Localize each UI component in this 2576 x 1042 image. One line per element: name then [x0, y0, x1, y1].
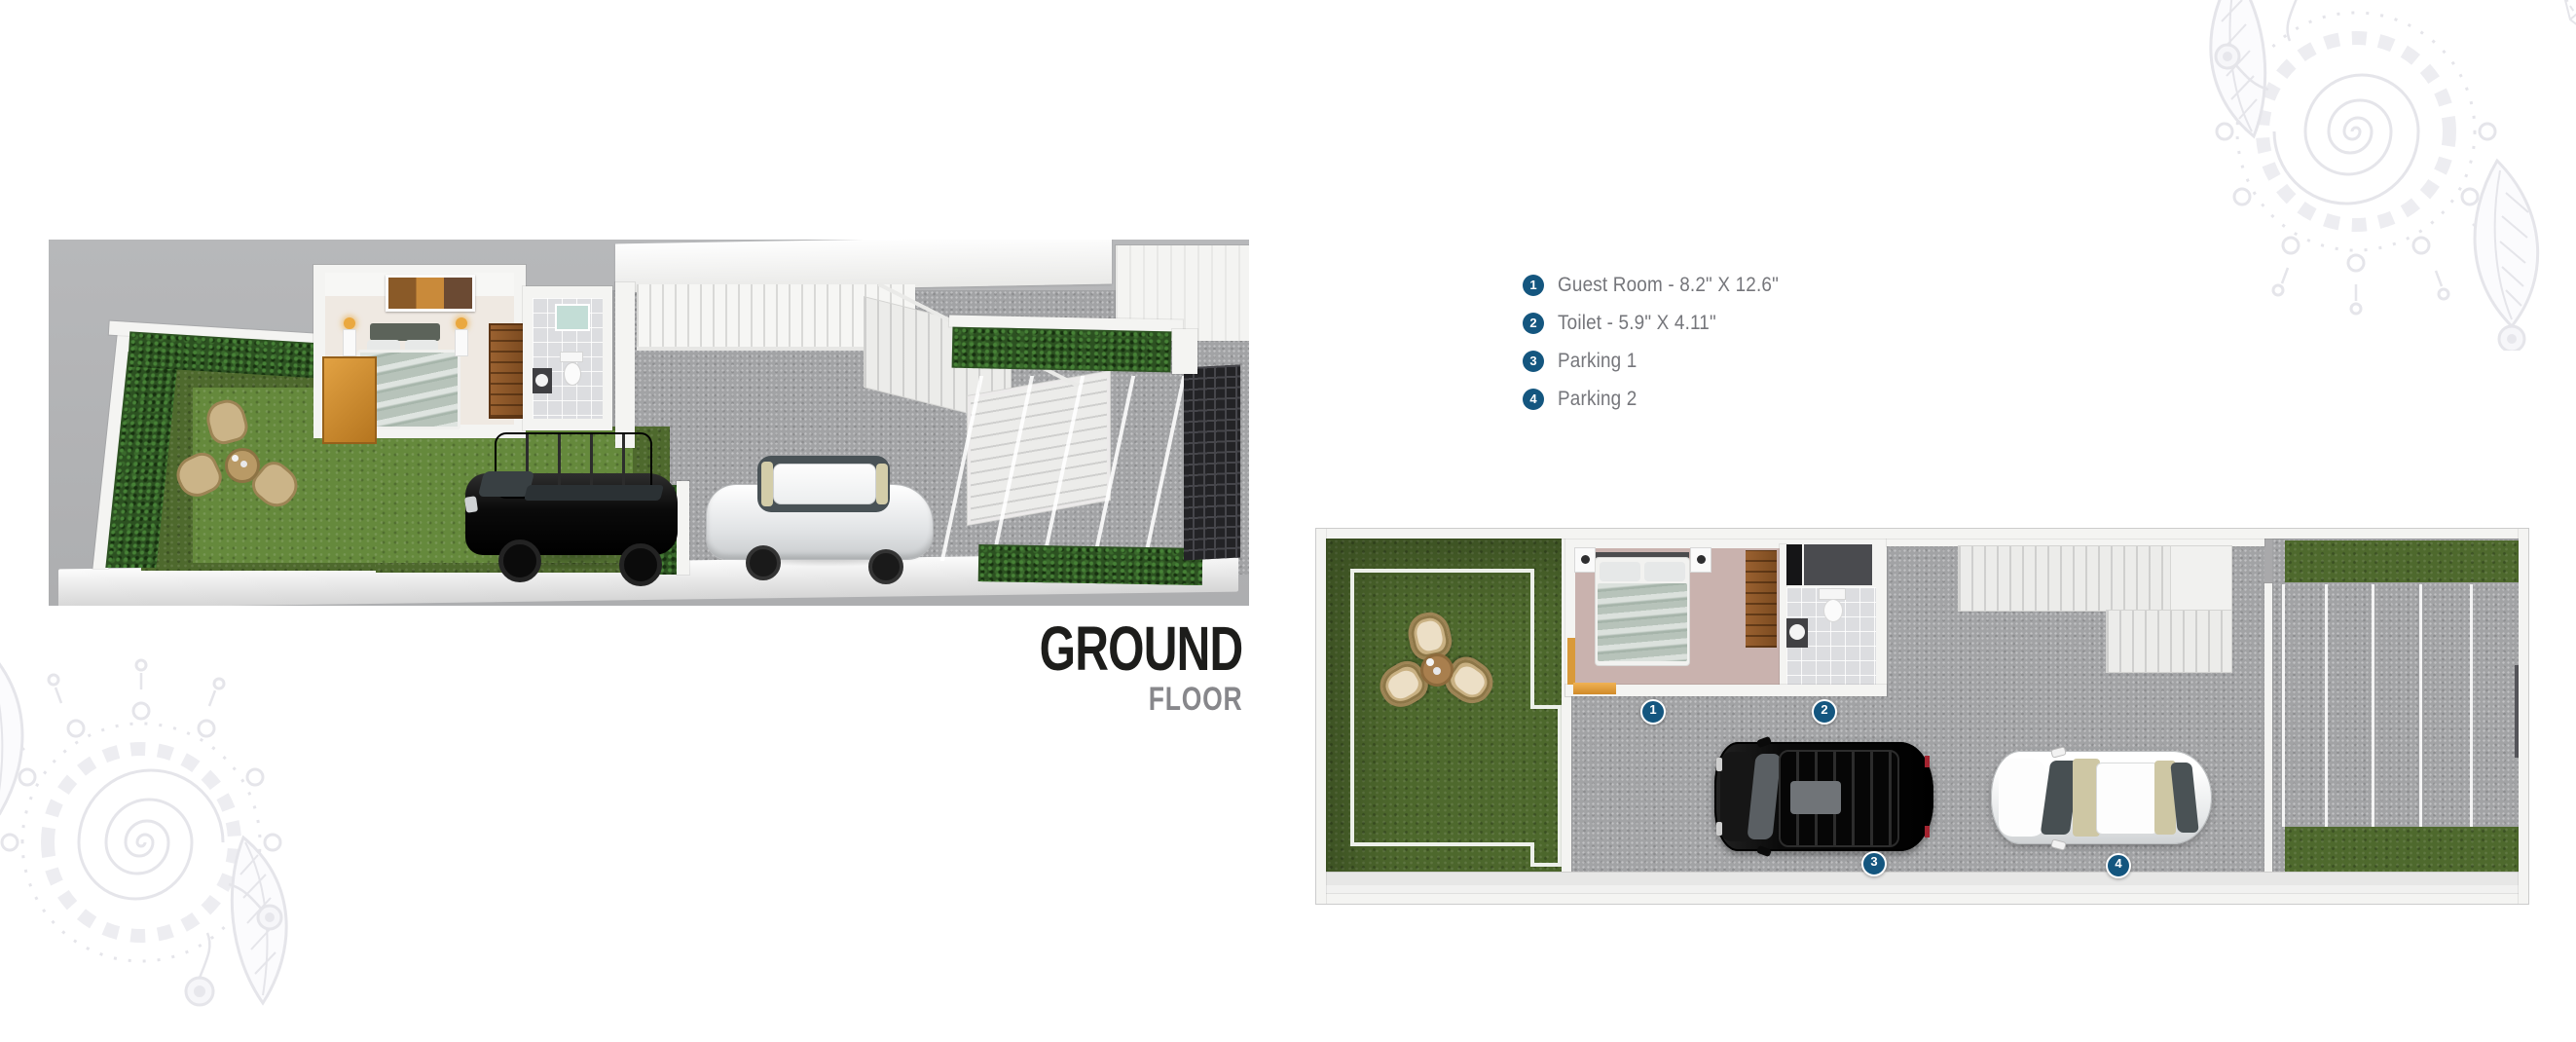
patio-cup	[240, 461, 247, 467]
suv-taillight-2d	[1925, 756, 1930, 767]
stairs-lower-flight-2d	[2107, 611, 2231, 672]
brochure-page: GROUND FLOOR 1 Guest Room - 8.2" X 12.6"…	[0, 0, 2576, 967]
garden-path-segment	[1530, 863, 1562, 867]
parking-stripe-line	[1042, 376, 1085, 561]
sedan-wheel	[746, 545, 781, 580]
orange-cabinet-2d	[1567, 638, 1575, 685]
parking-stripe-line	[2282, 584, 2285, 827]
patio-cup	[1433, 667, 1441, 675]
suv-side-windows	[524, 485, 664, 501]
stairs-top-wall-2d	[1887, 539, 2264, 546]
toilet-bowl-3d	[564, 362, 581, 386]
parking-green-bottom-2d	[2285, 827, 2519, 872]
washbasin-3d	[535, 374, 548, 387]
sedan-hood-2d	[1999, 759, 2045, 837]
bookshelf-3d	[489, 323, 526, 419]
page-title: GROUND FLOOR	[972, 619, 1242, 716]
stairs-landing-2d	[2171, 546, 2231, 611]
plan-marker-2-toilet: 2	[1812, 699, 1837, 725]
title-floor: FLOOR	[1031, 683, 1242, 716]
legend-label: Parking 2	[1558, 388, 1637, 411]
bottom-wall-strip-2d	[1326, 872, 2519, 885]
parking-stripe-line	[2470, 584, 2473, 827]
plan-marker-3-parking-1: 3	[1861, 851, 1887, 876]
sedan-roof-2d	[2096, 763, 2158, 835]
legend: 1 Guest Room - 8.2" X 12.6" 2 Toilet - 5…	[1523, 273, 1803, 425]
parking-stripe-line	[2325, 584, 2328, 827]
wardrobe-2d	[1746, 550, 1777, 648]
suv-headlight-2d	[1716, 758, 1722, 771]
bed-pillow-2d	[1600, 562, 1640, 581]
hedge-parking-top-3d	[952, 327, 1172, 373]
garden-path-segment	[1350, 569, 1534, 573]
parking-stripe-line	[1092, 376, 1135, 561]
dark-unit-large-2d	[1804, 544, 1872, 585]
bedside-lamp-3d	[344, 317, 355, 329]
garden-path-segment	[1350, 569, 1354, 846]
sedan-white-3d	[707, 456, 938, 575]
suv-wheel	[619, 543, 662, 586]
toilet-mirror-3d	[555, 304, 590, 331]
bed-pillow-2d	[1644, 562, 1685, 581]
plan-outer-wall-right	[2519, 529, 2528, 904]
suv-headlight	[464, 496, 478, 513]
plan-marker-4-parking-2: 4	[2106, 853, 2131, 878]
washbasin-2d	[1789, 624, 1805, 640]
sedan-roof	[773, 464, 876, 504]
orange-bench-2d	[1573, 683, 1616, 694]
floor-plan-2d-view: 1 2 3 4	[1316, 529, 2528, 904]
bedside-table-3d	[456, 330, 467, 355]
legend-label: Toilet - 5.9" X 4.11"	[1558, 312, 1716, 335]
plan-outer-wall-top	[1316, 529, 2528, 539]
sedan-interior	[761, 462, 773, 506]
suv-taillight-2d	[1925, 826, 1930, 837]
legend-number-icon: 2	[1523, 313, 1544, 334]
plan-outer-wall-bottom	[1316, 894, 2528, 904]
decorative-paisley-bottom-left	[0, 623, 443, 1042]
floor-plan-3d-view	[49, 240, 1249, 606]
suv-wheel	[498, 540, 541, 582]
parking-stripe-line	[2372, 584, 2374, 827]
parking-stripes-3d	[935, 376, 1207, 561]
wall-art-3d	[386, 275, 475, 312]
entrance-gate-3d	[1184, 364, 1240, 560]
dark-unit-2d	[1786, 544, 1802, 585]
sedan-white-2d	[1991, 751, 2212, 844]
bedside-lamp-3d	[456, 317, 467, 329]
legend-number-icon: 1	[1523, 275, 1544, 296]
stair-sidewall-3d	[615, 282, 635, 448]
suv-black-2d	[1714, 742, 1933, 851]
plan-marker-1-guest-room: 1	[1640, 699, 1666, 725]
toilet-bowl-2d	[1823, 599, 1843, 622]
plan-outer-wall-left	[1316, 529, 1326, 904]
legend-row-guest-room: 1 Guest Room - 8.2" X 12.6"	[1523, 273, 1803, 298]
suv-black-3d	[465, 432, 684, 578]
garden-path-segment	[1530, 842, 1534, 867]
bed-headboard-3d	[370, 323, 440, 341]
gate-pillar-3d	[1172, 329, 1197, 374]
decorative-paisley-top-right	[2054, 0, 2576, 351]
legend-row-parking-2: 4 Parking 2	[1523, 387, 1803, 412]
bedside-lamp-2d	[1697, 555, 1706, 564]
legend-number-icon: 4	[1523, 389, 1544, 410]
sedan-interior	[876, 464, 888, 504]
wardrobe-orange-3d	[322, 356, 377, 444]
parking-green-top-2d	[2285, 540, 2519, 582]
legend-label: Parking 1	[1558, 350, 1637, 373]
legend-row-toilet: 2 Toilet - 5.9" X 4.11"	[1523, 311, 1803, 336]
sedan-wheel	[868, 549, 903, 584]
patio-cup	[1426, 658, 1434, 666]
bottom-wall-strip-outer-2d	[1326, 885, 2519, 894]
legend-row-parking-1: 3 Parking 1	[1523, 349, 1803, 374]
legend-number-icon: 3	[1523, 351, 1544, 372]
hedge-parking-bottom-3d	[978, 544, 1203, 585]
parking-area-2d	[2272, 539, 2519, 875]
garden-path-segment	[1350, 842, 1534, 846]
bedside-lamp-2d	[1581, 555, 1590, 564]
bed-duvet-2d	[1598, 583, 1687, 661]
parking-stripe-line	[991, 376, 1034, 561]
divider-wall-2d	[2264, 583, 2272, 872]
bedside-table-3d	[344, 330, 355, 355]
toilet-tank-2d	[1820, 589, 1845, 599]
parking-stripe-line	[2419, 584, 2422, 827]
suv-sunroof-2d	[1790, 781, 1841, 814]
legend-label: Guest Room - 8.2" X 12.6"	[1558, 274, 1779, 297]
suv-headlight-2d	[1716, 822, 1722, 836]
bedroom-toilet-wall-2d	[1780, 544, 1786, 685]
patio-cup	[232, 455, 239, 462]
title-ground: GROUND	[1039, 619, 1242, 679]
toilet-tank-3d	[561, 353, 582, 361]
stairs-upper-flight-2d	[1959, 546, 2171, 611]
garden-path-segment	[1530, 569, 1534, 709]
